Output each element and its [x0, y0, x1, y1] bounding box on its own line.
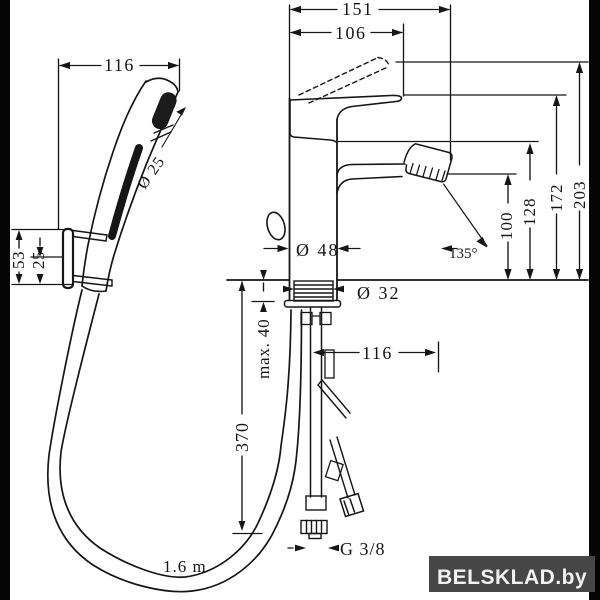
svg-text:Ø 32: Ø 32: [357, 283, 401, 303]
svg-text:Ø 48: Ø 48: [296, 240, 340, 260]
svg-text:116: 116: [104, 55, 135, 75]
svg-text:172: 172: [547, 184, 566, 213]
svg-text:100: 100: [497, 212, 516, 241]
svg-text:116: 116: [362, 343, 393, 363]
svg-text:151: 151: [342, 0, 374, 19]
svg-text:25: 25: [29, 251, 48, 269]
svg-text:128: 128: [520, 198, 539, 227]
svg-text:203: 203: [570, 181, 589, 210]
svg-text:max. 40: max. 40: [254, 319, 273, 379]
svg-text:135°: 135°: [449, 246, 478, 262]
svg-text:G 3/8: G 3/8: [340, 539, 386, 559]
svg-text:106: 106: [335, 23, 367, 43]
svg-text:370: 370: [232, 422, 252, 452]
svg-text:BELSKLAD.by: BELSKLAD.by: [437, 566, 587, 589]
svg-text:1.6 m: 1.6 m: [163, 557, 207, 576]
svg-text:53: 53: [9, 251, 28, 269]
